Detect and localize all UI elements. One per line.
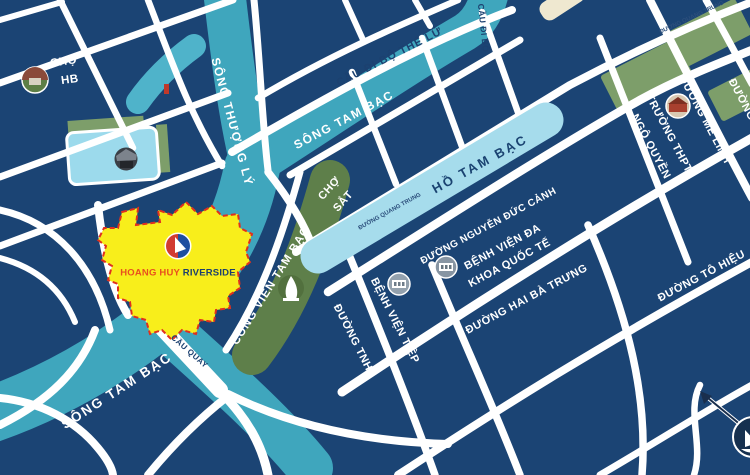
label-cau-di-bo-the-lu: CẦU ĐI BỘ THẾ LỮ [335,26,445,90]
label-duong-quang-trung: ĐƯỜNG QUANG TRUNG [358,192,423,232]
project-name-part1: HOANG HUY [120,268,180,279]
label-cau-quay: CẦU QUAY [169,334,209,370]
project-name-part2: RIVERSIDE [180,268,236,279]
map-labels: HOANG HUY RIVERSIDE CHỢHBSÔNG THƯỢNG LÝC… [0,0,750,475]
label-benh-vien-tiep: BỆNH VIỆN TIỆP [367,276,420,365]
label-song-thuong-ly: SÔNG THƯỢNG LÝ [209,56,255,187]
label-cong-vien-tam-bac: CÔNG VIÊN TAM BẠC [230,225,313,347]
project-name-label: HOANG HUY RIVERSIDE [120,268,236,279]
label-cho-hb-2: HB [60,73,79,87]
label-duong-tnh: ĐƯỜNG TNH [330,303,373,373]
label-cau-di-bo: CẦU ĐI BỘ [476,3,490,53]
label-cho-sat-2: SẮT [332,189,356,214]
label-song-tam-bac-top: SÔNG TAM BẠC [292,88,396,151]
label-ho-tam-bac: HỒ TAM BẠC [430,132,530,196]
label-song-tam-bac-bottom: SÔNG TAM BẠC [59,350,175,432]
label-duong-edge: ĐƯỜNG [725,77,750,123]
label-cho-hb: CHỢ [49,54,78,70]
location-map: HOANG HUY RIVERSIDE CHỢHBSÔNG THƯỢNG LÝC… [0,0,750,475]
label-duong-to-hieu: ĐƯỜNG TÔ HIỆU [656,249,747,305]
label-duong-quang-trung-2: ĐƯỜNG QUANG TRUNG [659,0,725,35]
